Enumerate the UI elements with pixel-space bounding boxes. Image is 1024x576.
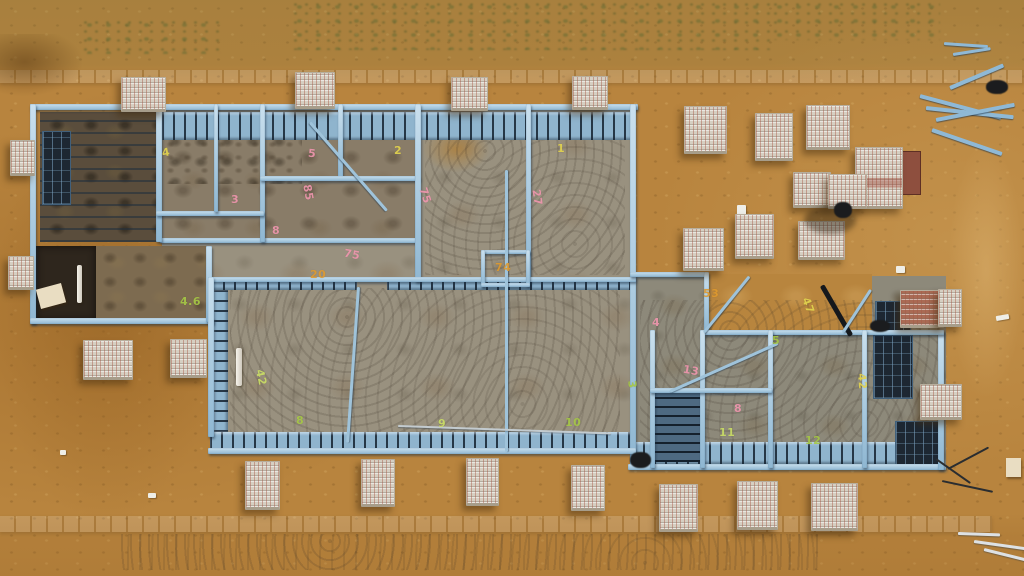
paint-marking: 5 [307, 147, 316, 161]
stud-band [212, 290, 228, 432]
weed-patch [290, 0, 770, 50]
brick-pallet [737, 481, 778, 530]
brick-pallet [245, 461, 280, 510]
paint-marking: 74 [495, 261, 511, 274]
paint-marking: 20 [310, 268, 326, 281]
stud-bay [652, 392, 700, 462]
steel-frame-wall [30, 104, 36, 324]
red-panel [901, 151, 921, 195]
paint-marking: 3 [231, 193, 239, 206]
brick-pallet [8, 256, 34, 290]
steel-frame-wall [214, 104, 218, 212]
paint-marking: 8 [296, 414, 304, 427]
brick-pallet [793, 172, 831, 208]
paint-marking: 8 [272, 224, 280, 237]
steel-frame-wall [208, 277, 214, 437]
metal-offcut [984, 548, 1024, 562]
wire-debris [948, 447, 990, 470]
brick-pallet [121, 77, 166, 112]
steel-frame-wall [862, 330, 867, 468]
dark-room-interior [36, 246, 96, 320]
steel-frame-wall [30, 318, 214, 324]
paint-marking: 8 [734, 402, 742, 415]
steel-frame-wall [212, 277, 636, 282]
paint-marking: 53 [703, 287, 719, 300]
paint-marking: 5 [772, 334, 780, 347]
window-frame [43, 132, 70, 204]
steel-frame-wall [650, 330, 655, 468]
tyre-tracks [120, 534, 820, 570]
steel-frame-wall [160, 238, 418, 243]
white-debris [148, 493, 156, 498]
steel-frame-wall [768, 330, 773, 468]
steel-frame-wall [630, 104, 636, 466]
board-sheet [1006, 458, 1021, 477]
metal-offcut [974, 540, 1024, 551]
dark-object [986, 80, 1008, 94]
worker-figure [834, 202, 852, 218]
paint-marking: 3 [625, 380, 639, 389]
brick-pallet [466, 458, 499, 506]
paint-marking: 2 [394, 144, 402, 157]
construction-site-aerial-photo: 4521857527387520744.64289105347453138111… [0, 0, 1024, 576]
paint-marking: 75 [343, 247, 361, 263]
steel-frame-wall [208, 448, 636, 454]
brick-pallet [572, 76, 608, 110]
dark-object [630, 452, 651, 468]
brick-pallet [806, 105, 850, 150]
dark-framing-bay [896, 422, 940, 466]
steel-brace [505, 170, 508, 452]
paint-marking: 11 [719, 426, 735, 439]
steel-frame-wall [704, 330, 944, 335]
paint-marking: 10 [565, 416, 581, 429]
tyre-tracks [230, 288, 620, 433]
paint-marking: 42 [855, 373, 869, 390]
steel-frame-wall [156, 104, 162, 242]
brick-pallet [920, 384, 962, 420]
paint-marking: 27 [530, 189, 545, 207]
brick-pallet [659, 484, 698, 532]
steel-offcut [953, 47, 991, 56]
brick-pallet [170, 339, 207, 378]
wet-sand-patch [0, 34, 82, 96]
closet-box-wall [526, 250, 530, 286]
steel-frame-wall [630, 272, 708, 277]
weed-patch [80, 18, 220, 54]
brick-pallet [938, 289, 962, 327]
metal-offcut [958, 532, 1000, 536]
pvc-pipe [77, 265, 82, 303]
weed-patch [770, 0, 940, 40]
brick-pallet [735, 214, 774, 259]
brick-pallet [10, 140, 35, 176]
brick-pallet [295, 72, 335, 109]
wire-debris [935, 458, 971, 484]
pvc-pipe [236, 348, 242, 386]
brick-pallet [684, 106, 727, 154]
paint-marking: 4.6 [180, 295, 201, 308]
brick-pallet [811, 483, 858, 531]
steel-frame-wall [156, 211, 264, 216]
paint-marking: 12 [805, 434, 821, 447]
paint-marking: 13 [682, 363, 700, 379]
steel-frame-wall [338, 104, 343, 178]
paint-marking: 1 [557, 142, 565, 155]
dark-object [870, 320, 890, 332]
brick-pallet [361, 459, 395, 507]
closet-box-wall [481, 250, 485, 286]
brick-pallet [683, 228, 724, 271]
paint-marking: 85 [300, 183, 316, 201]
brick-pallet [755, 113, 793, 161]
white-debris [60, 450, 66, 455]
paint-marking: 4 [652, 316, 660, 329]
brick-pallet [83, 340, 133, 380]
steel-frame-wall [650, 388, 772, 393]
floor-joist-band [162, 112, 632, 140]
brick-pallet [571, 465, 605, 511]
sand-highlight [948, 140, 1024, 400]
steel-offcut [944, 42, 988, 48]
steel-frame-wall [628, 464, 946, 470]
steel-frame-wall [260, 176, 420, 181]
steel-frame-wall [260, 104, 265, 242]
paint-marking: 9 [438, 417, 446, 430]
white-debris [896, 266, 905, 273]
dark-framing-bay [874, 336, 912, 398]
dirt-floor [95, 246, 209, 320]
brick-pallet [451, 77, 488, 111]
steel-frame-wall [700, 330, 705, 468]
